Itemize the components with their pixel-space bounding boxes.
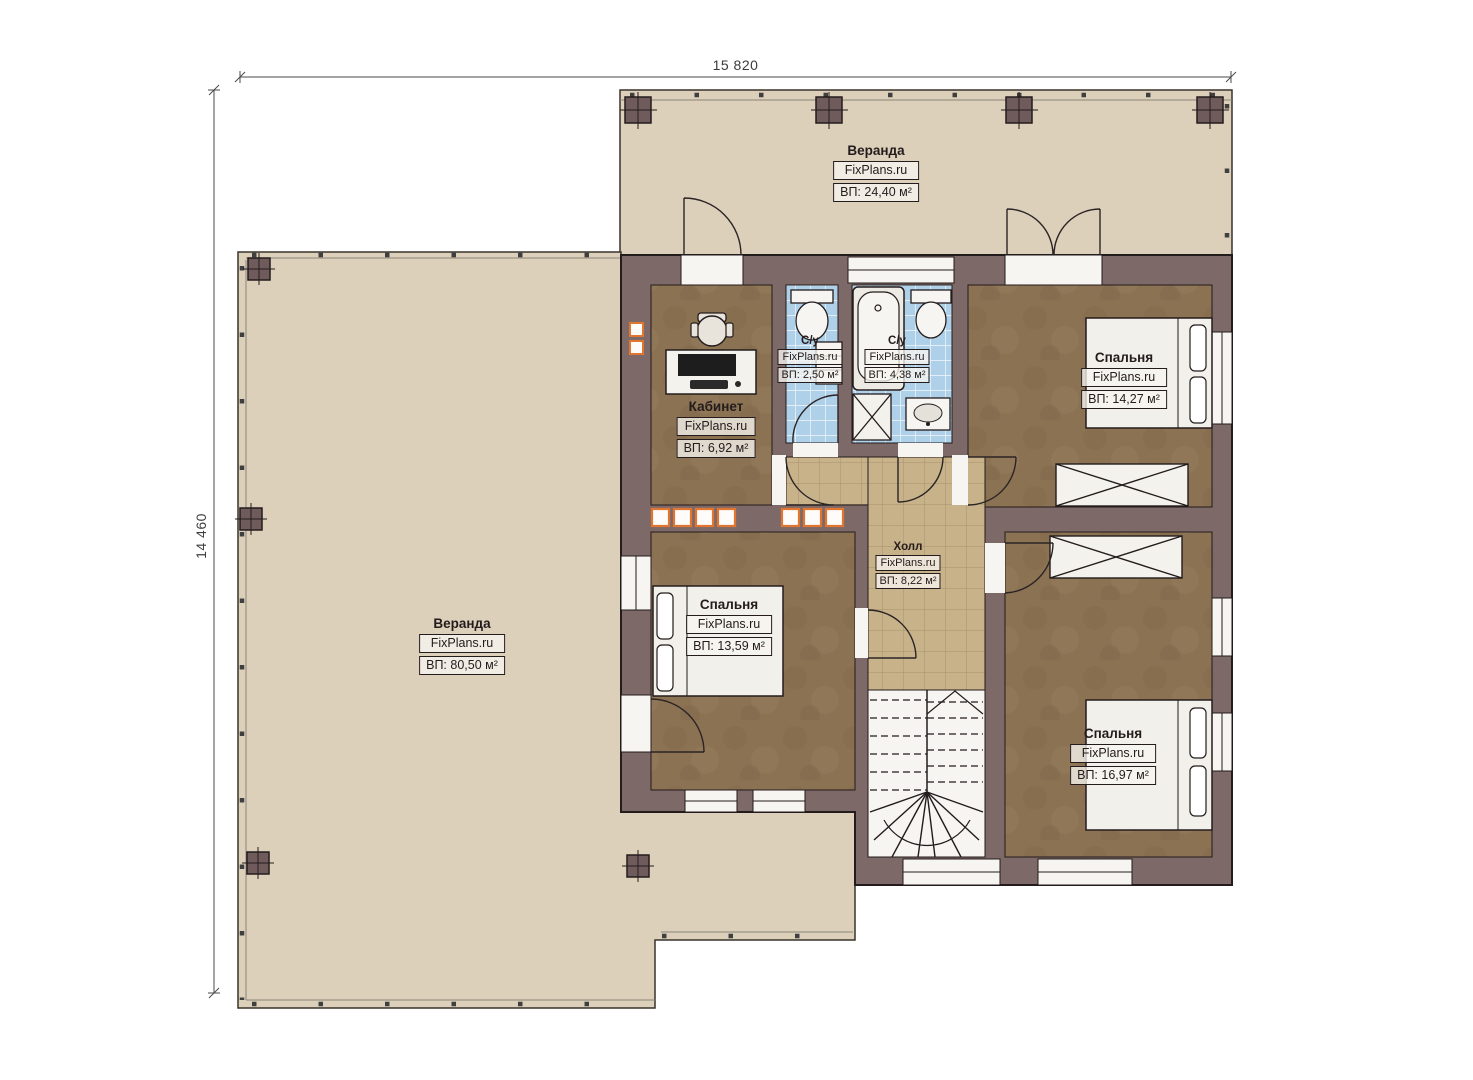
room-brand: FixPlans.ru xyxy=(833,161,919,180)
room-label-bathroom: С/у FixPlans.ru ВП: 4,38 м² xyxy=(864,335,929,383)
room-name: Холл xyxy=(875,541,940,553)
room-label-bedroom-left: Спальня FixPlans.ru ВП: 13,59 м² xyxy=(686,597,772,656)
door-opening-bedroom-left-veranda xyxy=(621,695,651,752)
sink xyxy=(906,398,950,430)
room-name: Спальня xyxy=(1081,350,1167,365)
shower-tray xyxy=(853,394,891,440)
room-name: Спальня xyxy=(686,597,772,612)
room-label-wc-small: С/у FixPlans.ru ВП: 2,50 м² xyxy=(777,335,842,383)
door-opening-veranda-top-left xyxy=(681,255,743,285)
room-name: С/у xyxy=(777,335,842,347)
room-brand: FixPlans.ru xyxy=(875,555,940,571)
room-area: ВП: 80,50 м² xyxy=(419,656,505,675)
room-brand: FixPlans.ru xyxy=(686,615,772,634)
room-name: Кабинет xyxy=(677,399,756,414)
veranda-top-shape xyxy=(620,90,1232,255)
room-name: Веранда xyxy=(833,143,919,158)
door-opening-veranda-double xyxy=(1005,255,1102,285)
room-name: С/у xyxy=(864,335,929,347)
room-brand: FixPlans.ru xyxy=(1081,368,1167,387)
room-area: ВП: 6,92 м² xyxy=(677,439,756,458)
room-area: ВП: 16,97 м² xyxy=(1070,766,1156,785)
room-area: ВП: 2,50 м² xyxy=(777,367,842,383)
dimension-left-label: 14 460 xyxy=(193,491,209,581)
room-brand: FixPlans.ru xyxy=(864,349,929,365)
room-brand: FixPlans.ru xyxy=(1070,744,1156,763)
room-label-veranda-left: Веранда FixPlans.ru ВП: 80,50 м² xyxy=(419,616,505,675)
room-label-office: Кабинет FixPlans.ru ВП: 6,92 м² xyxy=(677,399,756,458)
room-area: ВП: 13,59 м² xyxy=(686,637,772,656)
room-label-bedroom-top-right: Спальня FixPlans.ru ВП: 14,27 м² xyxy=(1081,350,1167,409)
room-brand: FixPlans.ru xyxy=(777,349,842,365)
wardrobe xyxy=(1050,536,1182,578)
room-name: Веранда xyxy=(419,616,505,631)
room-brand: FixPlans.ru xyxy=(419,634,505,653)
room-name: Спальня xyxy=(1070,726,1156,741)
floor-plan-drawing xyxy=(0,0,1473,1080)
room-label-bedroom-bottom-right: Спальня FixPlans.ru ВП: 16,97 м² xyxy=(1070,726,1156,785)
room-area: ВП: 8,22 м² xyxy=(875,573,940,589)
room-brand: FixPlans.ru xyxy=(677,417,756,436)
room-label-hall: Холл FixPlans.ru ВП: 8,22 м² xyxy=(875,541,940,589)
wardrobe xyxy=(1056,464,1188,506)
room-area: ВП: 14,27 м² xyxy=(1081,390,1167,409)
room-area: ВП: 4,38 м² xyxy=(864,367,929,383)
room-label-veranda-top: Веранда FixPlans.ru ВП: 24,40 м² xyxy=(833,143,919,202)
dimension-top-label: 15 820 xyxy=(240,57,1231,73)
room-area: ВП: 24,40 м² xyxy=(833,183,919,202)
floor-plan: 15 820 14 460 Веранда FixPlans.ru ВП: 24… xyxy=(0,0,1473,1080)
